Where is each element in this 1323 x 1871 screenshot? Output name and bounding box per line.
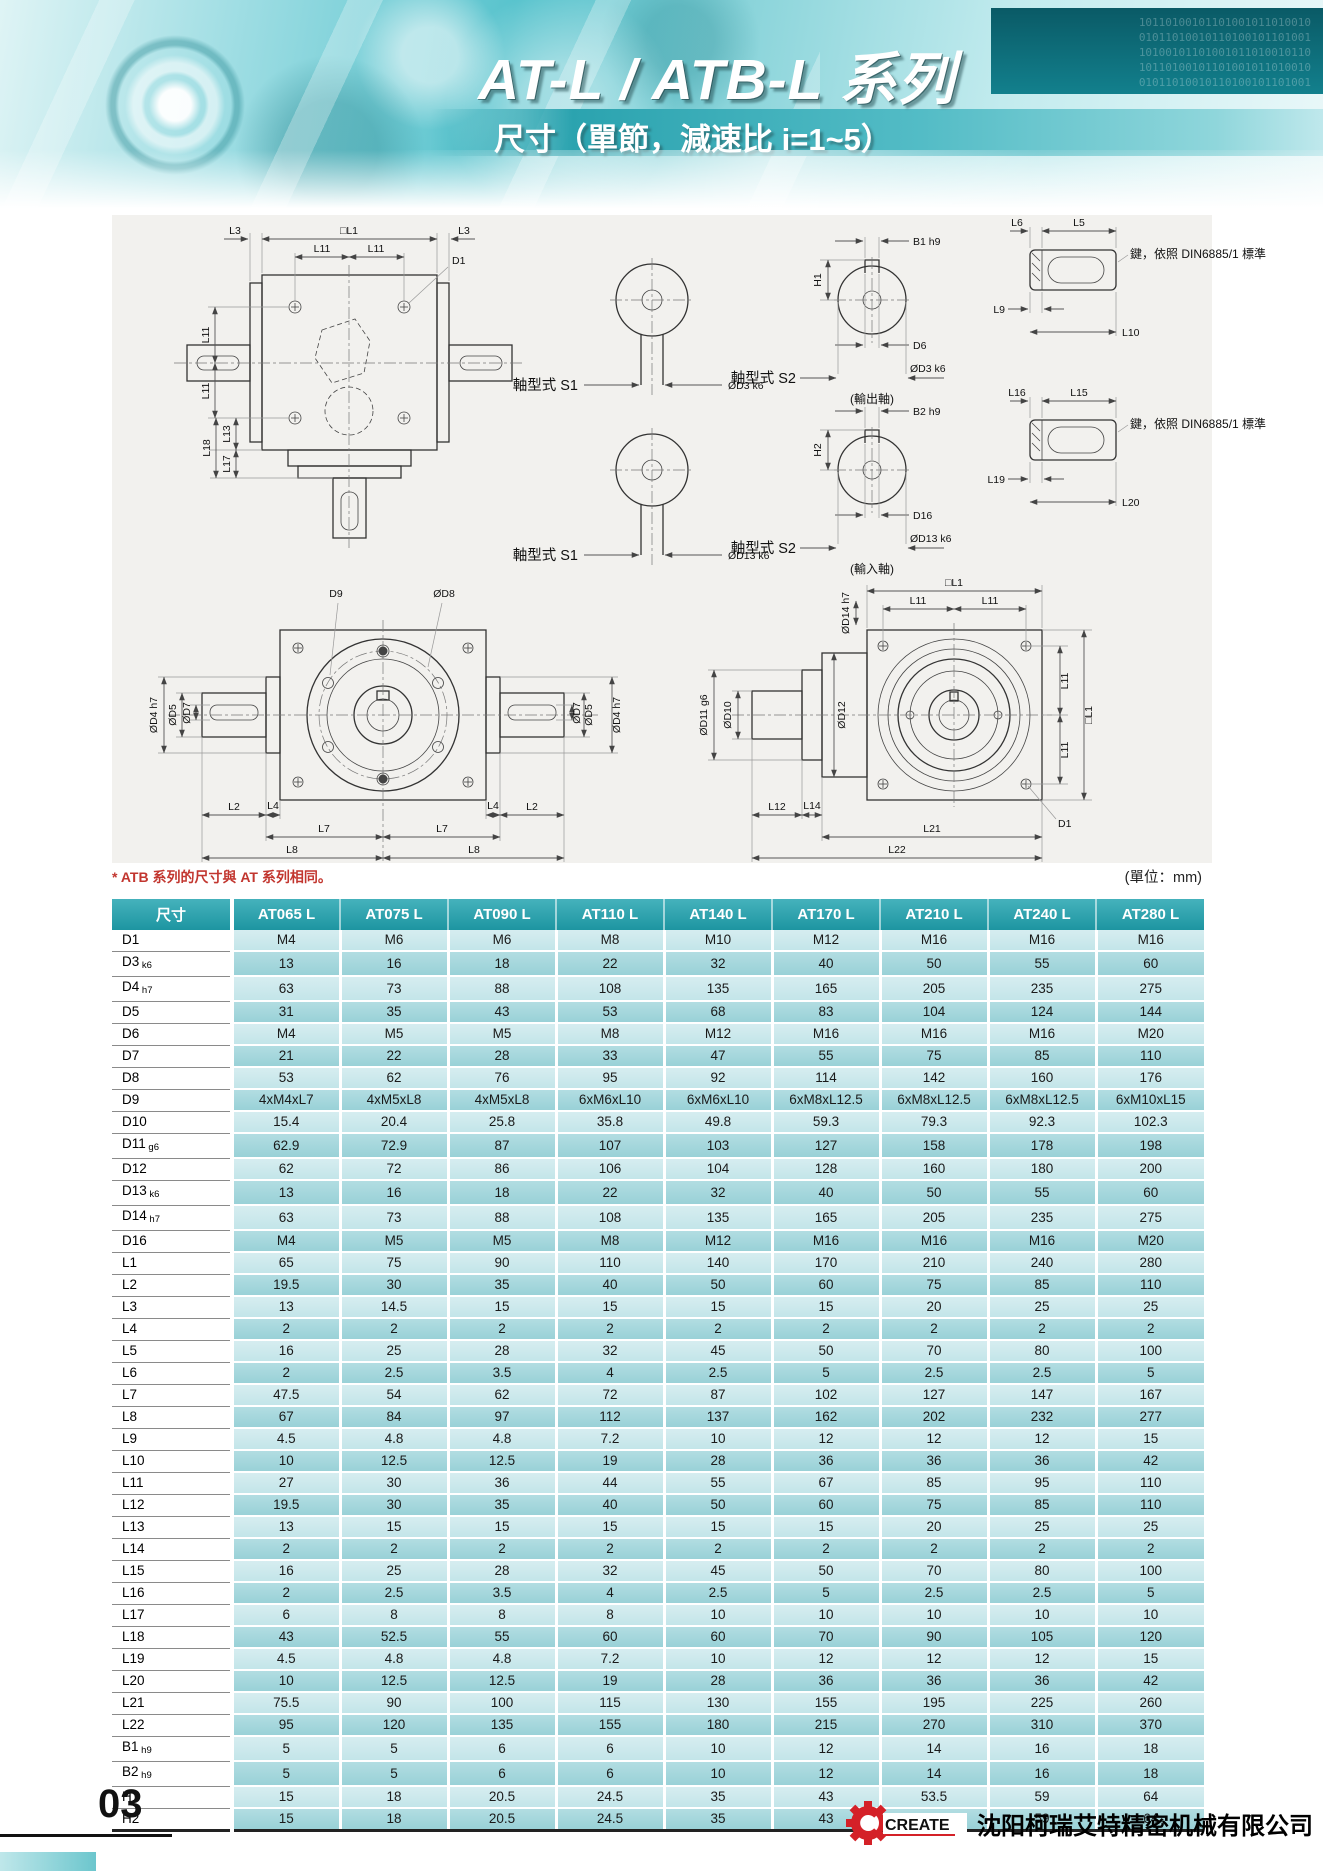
binary-line: 01011010010110100101101001 [1003,30,1311,45]
table-cell: 102 [772,1384,880,1406]
table-cell: 5 [772,1362,880,1384]
table-cell: 3.5 [448,1582,556,1604]
table-cell: 14.5 [340,1296,448,1318]
table-row: L622.53.542.552.52.55 [112,1362,1204,1384]
table-cell: 35 [448,1494,556,1516]
table-cell: 19 [556,1670,664,1692]
row-label: L14 [112,1538,232,1560]
dim-label-l11: L11 [368,243,385,255]
view-top-gearbox: L3 □L1 L3 L11 L11 D1 L11 L11 L13 L18 L17 [174,225,525,548]
dim-label-L1: □L1 [1083,706,1095,724]
table-cell: 277 [1096,1406,1204,1428]
table-cell: 2.5 [988,1582,1096,1604]
dim-label-l3: L3 [458,225,470,237]
table-cell: 24.5 [556,1808,664,1831]
table-cell: 2 [232,1362,340,1384]
table-cell: 104 [880,1001,988,1023]
table-cell: 12 [772,1761,880,1786]
row-label: D12 [112,1158,232,1180]
table-cell: 80 [988,1560,1096,1582]
label-shaft-type-s2: 軸型式 S2 [731,540,796,557]
table-cell: 142 [880,1067,988,1089]
table-cell: 225 [988,1692,1096,1714]
table-cell: 72 [556,1384,664,1406]
table-cell: 275 [1096,1205,1204,1230]
table-cell: 2 [1096,1538,1204,1560]
table-cell: 105 [988,1626,1096,1648]
table-row: L8678497112137162202232277 [112,1406,1204,1428]
table-cell: 65 [232,1252,340,1274]
table-cell: 12 [772,1428,880,1450]
table-cell: 80 [988,1340,1096,1362]
table-cell: 112 [556,1406,664,1428]
table-cell: 4.5 [232,1648,340,1670]
table-cell: 235 [988,976,1096,1001]
table-cell: 60 [772,1494,880,1516]
table-cell: 24.5 [556,1786,664,1808]
table-cell: 67 [232,1406,340,1428]
view-key-output: L6 L5 鍵，依照 DIN6885/1 標準 L9 L10 [993,217,1266,339]
table-cell: 75 [880,1494,988,1516]
table-cell: 200 [1096,1158,1204,1180]
table-cell: 63 [232,976,340,1001]
table-cell: 84 [340,1406,448,1428]
table-row: L747.554627287102127147167 [112,1384,1204,1406]
row-label: L7 [112,1384,232,1406]
table-cell: 260 [1096,1692,1204,1714]
table-cell: 18 [1096,1761,1204,1786]
table-cell: 6 [448,1736,556,1761]
table-cell: 54 [340,1384,448,1406]
dim-label-dd11: ØD11 g6 [698,694,710,735]
table-cell: M16 [1096,930,1204,951]
table-cell: 42 [1096,1450,1204,1472]
dim-label-b1: B1 h9 [913,236,941,248]
hero-banner: 10110100101101001011010010 0101101001011… [0,0,1323,212]
table-cell: 2.5 [340,1582,448,1604]
table-cell: 35 [664,1786,772,1808]
table-cell: 70 [880,1340,988,1362]
table-cell: 75.5 [232,1692,340,1714]
table-cell: 36 [988,1450,1096,1472]
table-cell: 30 [340,1274,448,1296]
table-cell: 16 [340,951,448,976]
table-cell: 25 [988,1516,1096,1538]
table-cell: 5 [232,1761,340,1786]
table-cell: 2 [988,1538,1096,1560]
table-row: D11 g662.972.987107103127158178198 [112,1133,1204,1158]
table-cell: 2.5 [664,1582,772,1604]
table-row: L151625283245507080100 [112,1560,1204,1582]
dim-label-dd5: ØD5 [167,704,179,726]
table-cell: M5 [340,1023,448,1045]
table-cell: 10 [1096,1604,1204,1626]
dim-label-d1: D1 [452,255,466,267]
table-cell: 106 [556,1158,664,1180]
table-cell: 75 [340,1252,448,1274]
table-cell: 4 [556,1362,664,1384]
table-cell: 20.4 [340,1111,448,1133]
table-cell: 120 [1096,1626,1204,1648]
table-cell: 60 [772,1274,880,1296]
row-label: L11 [112,1472,232,1494]
table-cell: 15 [556,1516,664,1538]
table-row: L2175.590100115130155195225260 [112,1692,1204,1714]
row-label: D4 h7 [112,976,232,1001]
row-label: D8 [112,1067,232,1089]
table-cell: 6xM8xL12.5 [772,1089,880,1111]
table-cell: 53 [232,1067,340,1089]
table-cell: 88 [448,976,556,1001]
binary-line: 10100101101001011010010110 [1003,45,1311,60]
table-cell: 47 [664,1045,772,1067]
label-shaft-type-s2: 軸型式 S2 [731,370,796,387]
table-cell: 2 [232,1582,340,1604]
dim-label-l9: L9 [993,304,1005,316]
table-cell: 2 [232,1538,340,1560]
dim-label-dd7: ØD7 [181,702,193,724]
table-cell: 92.3 [988,1111,1096,1133]
row-label: L15 [112,1560,232,1582]
table-row: L94.54.84.87.21012121215 [112,1428,1204,1450]
table-cell: 8 [340,1604,448,1626]
dim-label-l10: L10 [1122,327,1140,339]
table-cell: 4 [556,1582,664,1604]
table-cell: 5 [340,1736,448,1761]
binary-line: 01011010010110100101101001 [1003,75,1311,90]
table-cell: 10 [664,1604,772,1626]
table-cell: 4.8 [340,1648,448,1670]
table-cell: 35.8 [556,1111,664,1133]
table-cell: 22 [340,1045,448,1067]
table-cell: 15 [1096,1648,1204,1670]
dim-label-l12: L12 [768,801,786,813]
table-cell: M16 [772,1023,880,1045]
row-label: L22 [112,1714,232,1736]
table-cell: 36 [448,1472,556,1494]
dim-label-l13: L13 [221,425,233,443]
view-side-flange: □L1 L11 L11 ØD14 h7 ØD11 g6 ØD10 ØD12 L1… [698,577,1095,862]
table-cell: 50 [772,1560,880,1582]
table-cell: 55 [772,1045,880,1067]
table-cell: 104 [664,1158,772,1180]
table-cell: 6xM8xL12.5 [880,1089,988,1111]
table-cell: 2 [988,1318,1096,1340]
table-cell: 7.2 [556,1648,664,1670]
row-label: D11 g6 [112,1133,232,1158]
table-cell: 8 [448,1604,556,1626]
dim-label-dd8: ØD8 [433,588,455,600]
table-cell: 5 [1096,1362,1204,1384]
table-cell: 5 [772,1582,880,1604]
table-cell: 25 [988,1296,1096,1318]
col-header-at140: AT140 L [664,899,772,930]
table-cell: 87 [448,1133,556,1158]
table-cell: M16 [988,1230,1096,1252]
dim-label-l4: L4 [487,800,499,812]
table-cell: 32 [556,1560,664,1582]
table-row: B1 h955661012141618 [112,1736,1204,1761]
dim-label-l6: L6 [1011,217,1023,229]
table-cell: 85 [988,1274,1096,1296]
table-row: D13 k6131618223240505560 [112,1180,1204,1205]
table-cell: 50 [880,951,988,976]
table-cell: 32 [556,1340,664,1362]
table-cell: 15 [664,1296,772,1318]
col-header-at240: AT240 L [988,899,1096,930]
dim-label-l21: L21 [923,823,941,835]
table-cell: 15 [340,1516,448,1538]
table-row: D94xM4xL74xM5xL84xM5xL86xM6xL106xM6xL106… [112,1089,1204,1111]
table-cell: 8 [556,1604,664,1626]
table-cell: 32 [664,951,772,976]
table-row: L13131515151515202525 [112,1516,1204,1538]
row-label: L19 [112,1648,232,1670]
row-label: D5 [112,1001,232,1023]
table-cell: 158 [880,1133,988,1158]
table-cell: 50 [664,1494,772,1516]
create-gear-logo: CREATE [841,1795,969,1851]
table-cell: 18 [1096,1736,1204,1761]
table-cell: 7.2 [556,1428,664,1450]
table-cell: 198 [1096,1133,1204,1158]
table-cell: 115 [556,1692,664,1714]
table-cell: 100 [1096,1340,1204,1362]
dim-label-d6: D6 [913,340,927,352]
table-cell: 2.5 [988,1362,1096,1384]
technical-drawings: L3 □L1 L3 L11 L11 D1 L11 L11 L13 L18 L17 [112,215,1312,863]
dim-label-l5: L5 [1073,217,1085,229]
table-row: D1M4M6M6M8M10M12M16M16M16 [112,930,1204,951]
table-cell: 6xM6xL10 [664,1089,772,1111]
table-cell: 12 [772,1648,880,1670]
table-cell: 135 [448,1714,556,1736]
table-cell: 63 [232,1205,340,1230]
binary-line: 10110100101101001011010010 [1003,60,1311,75]
table-cell: 10 [664,1648,772,1670]
table-row: L1622.53.542.552.52.55 [112,1582,1204,1604]
bottom-accent-strip [0,1852,96,1871]
table-cell: 50 [772,1340,880,1362]
table-cell: 135 [664,976,772,1001]
dim-label-l7: L7 [436,823,448,835]
dimension-table: 尺寸 AT065 L AT075 L AT090 L AT110 L AT140… [112,899,1204,1832]
dim-label-l7: L7 [318,823,330,835]
table-cell: 76 [448,1067,556,1089]
table-cell: 73 [340,976,448,1001]
table-cell: 137 [664,1406,772,1428]
table-cell: 36 [880,1670,988,1692]
table-cell: 25 [1096,1516,1204,1538]
table-cell: 124 [988,1001,1096,1023]
row-label: B1 h9 [112,1736,232,1761]
table-cell: 36 [988,1670,1096,1692]
table-cell: 110 [1096,1274,1204,1296]
table-cell: 55 [988,1180,1096,1205]
label-key-din-note: 鍵，依照 DIN6885/1 標準 [1130,416,1266,431]
table-cell: 4xM4xL7 [232,1089,340,1111]
table-cell: 15.4 [232,1111,340,1133]
table-cell: M16 [880,1023,988,1045]
table-cell: 10 [664,1428,772,1450]
table-cell: 4xM5xL8 [340,1089,448,1111]
table-cell: 6xM8xL12.5 [988,1089,1096,1111]
table-cell: 10 [988,1604,1096,1626]
table-cell: 16 [988,1761,1096,1786]
table-cell: 35 [340,1001,448,1023]
table-cell: 16 [232,1560,340,1582]
table-cell: 12 [880,1428,988,1450]
row-label: L8 [112,1406,232,1428]
table-row: L1219.530354050607585110 [112,1494,1204,1516]
table-cell: 25 [340,1340,448,1362]
table-cell: 2 [448,1318,556,1340]
note-row: * ATB 系列的尺寸與 AT 系列相同。 (單位：mm) [112,866,1204,887]
table-cell: 4.5 [232,1428,340,1450]
table-cell: 42 [1096,1670,1204,1692]
table-cell: 120 [340,1714,448,1736]
table-cell: 6 [556,1736,664,1761]
table-cell: 180 [664,1714,772,1736]
table-cell: 16 [232,1340,340,1362]
table-cell: 12 [988,1648,1096,1670]
table-cell: 10 [664,1761,772,1786]
row-label: L10 [112,1450,232,1472]
row-label: D14 h7 [112,1205,232,1230]
company-name: 沈阳柯瑞艾特精密机械有限公司 [977,1806,1313,1841]
col-header-at075: AT075 L [340,899,448,930]
table-cell: 108 [556,976,664,1001]
row-label: L17 [112,1604,232,1626]
row-label: L4 [112,1318,232,1340]
table-cell: 18 [448,951,556,976]
table-cell: M6 [340,930,448,951]
table-row: L194.54.84.87.21012121215 [112,1648,1204,1670]
table-cell: 15 [232,1808,340,1831]
table-row: L112730364455678595110 [112,1472,1204,1494]
dim-label-dd10: ØD10 [722,701,734,729]
table-cell: 25 [340,1560,448,1582]
dim-label-dd7: ØD7 [571,702,583,724]
table-cell: 2.5 [880,1362,988,1384]
row-label: D13 k6 [112,1180,232,1205]
table-cell: 28 [448,1560,556,1582]
page-number: 03 [98,1782,143,1827]
table-cell: 13 [232,951,340,976]
table-cell: M8 [556,1230,664,1252]
table-cell: 176 [1096,1067,1204,1089]
label-shaft-type-s1: 軸型式 S1 [513,377,578,394]
table-cell: 25 [1096,1296,1204,1318]
table-cell: 85 [988,1045,1096,1067]
dim-label-dd12: ØD12 [836,701,848,729]
table-cell: 160 [988,1067,1096,1089]
table-cell: 5 [1096,1582,1204,1604]
table-cell: 155 [772,1692,880,1714]
table-cell: 22 [556,951,664,976]
table-row: L184352.55560607090105120 [112,1626,1204,1648]
table-cell: 92 [664,1067,772,1089]
table-row: D85362769592114142160176 [112,1067,1204,1089]
table-row: L2295120135155180215270310370 [112,1714,1204,1736]
table-cell: 47.5 [232,1384,340,1406]
row-label: L3 [112,1296,232,1318]
dim-label-d1: D1 [1058,818,1072,830]
table-cell: 162 [772,1406,880,1428]
table-cell: M4 [232,1230,340,1252]
table-cell: 4.8 [448,1648,556,1670]
dim-label-l11: L11 [1059,672,1071,689]
table-row: L1657590110140170210240280 [112,1252,1204,1274]
hero-fade [0,150,1323,212]
table-cell: 147 [988,1384,1096,1406]
table-cell: 370 [1096,1714,1204,1736]
col-header-at280: AT280 L [1096,899,1204,930]
table-cell: 110 [1096,1045,1204,1067]
table-row: D12627286106104128160180200 [112,1158,1204,1180]
row-label: L9 [112,1428,232,1450]
table-cell: 4.8 [340,1428,448,1450]
table-cell: 205 [880,1205,988,1230]
table-cell: 19 [556,1450,664,1472]
table-cell: 55 [988,951,1096,976]
table-cell: 60 [664,1626,772,1648]
table-cell: 75 [880,1045,988,1067]
table-cell: 3.5 [448,1362,556,1384]
dim-label-dd5: ØD5 [583,704,595,726]
table-cell: 86 [448,1158,556,1180]
row-label: D10 [112,1111,232,1133]
table-cell: 88 [448,1205,556,1230]
table-row: L31314.515151515202525 [112,1296,1204,1318]
dim-label-l22: L22 [888,844,906,856]
table-cell: 79.3 [880,1111,988,1133]
table-cell: 167 [1096,1384,1204,1406]
dim-label-l11: L11 [314,243,331,255]
col-header-at170: AT170 L [772,899,880,930]
table-cell: 210 [880,1252,988,1274]
table-cell: M20 [1096,1023,1204,1045]
table-cell: 68 [664,1001,772,1023]
table-cell: 19.5 [232,1274,340,1296]
row-label: L16 [112,1582,232,1604]
table-cell: 13 [232,1180,340,1205]
table-cell: 5 [340,1761,448,1786]
table-cell: 130 [664,1692,772,1714]
table-cell: 95 [556,1067,664,1089]
dim-label-l3: L3 [229,225,241,237]
table-cell: 2 [664,1538,772,1560]
table-cell: 55 [448,1626,556,1648]
table-cell: 72 [340,1158,448,1180]
table-cell: 155 [556,1714,664,1736]
table-row: L14222222222 [112,1538,1204,1560]
dim-label-l16: L16 [1008,387,1026,399]
table-cell: 52.5 [340,1626,448,1648]
table-cell: 83 [772,1001,880,1023]
table-cell: 110 [1096,1494,1204,1516]
col-header-size: 尺寸 [112,899,232,930]
table-cell: 85 [880,1472,988,1494]
table-cell: 4.8 [448,1428,556,1450]
table-cell: 280 [1096,1252,1204,1274]
table-cell: 18 [340,1786,448,1808]
table-cell: 310 [988,1714,1096,1736]
table-cell: 15 [772,1516,880,1538]
table-cell: 20.5 [448,1808,556,1831]
table-row: L201012.512.5192836363642 [112,1670,1204,1692]
dim-label-l19: L19 [987,474,1005,486]
